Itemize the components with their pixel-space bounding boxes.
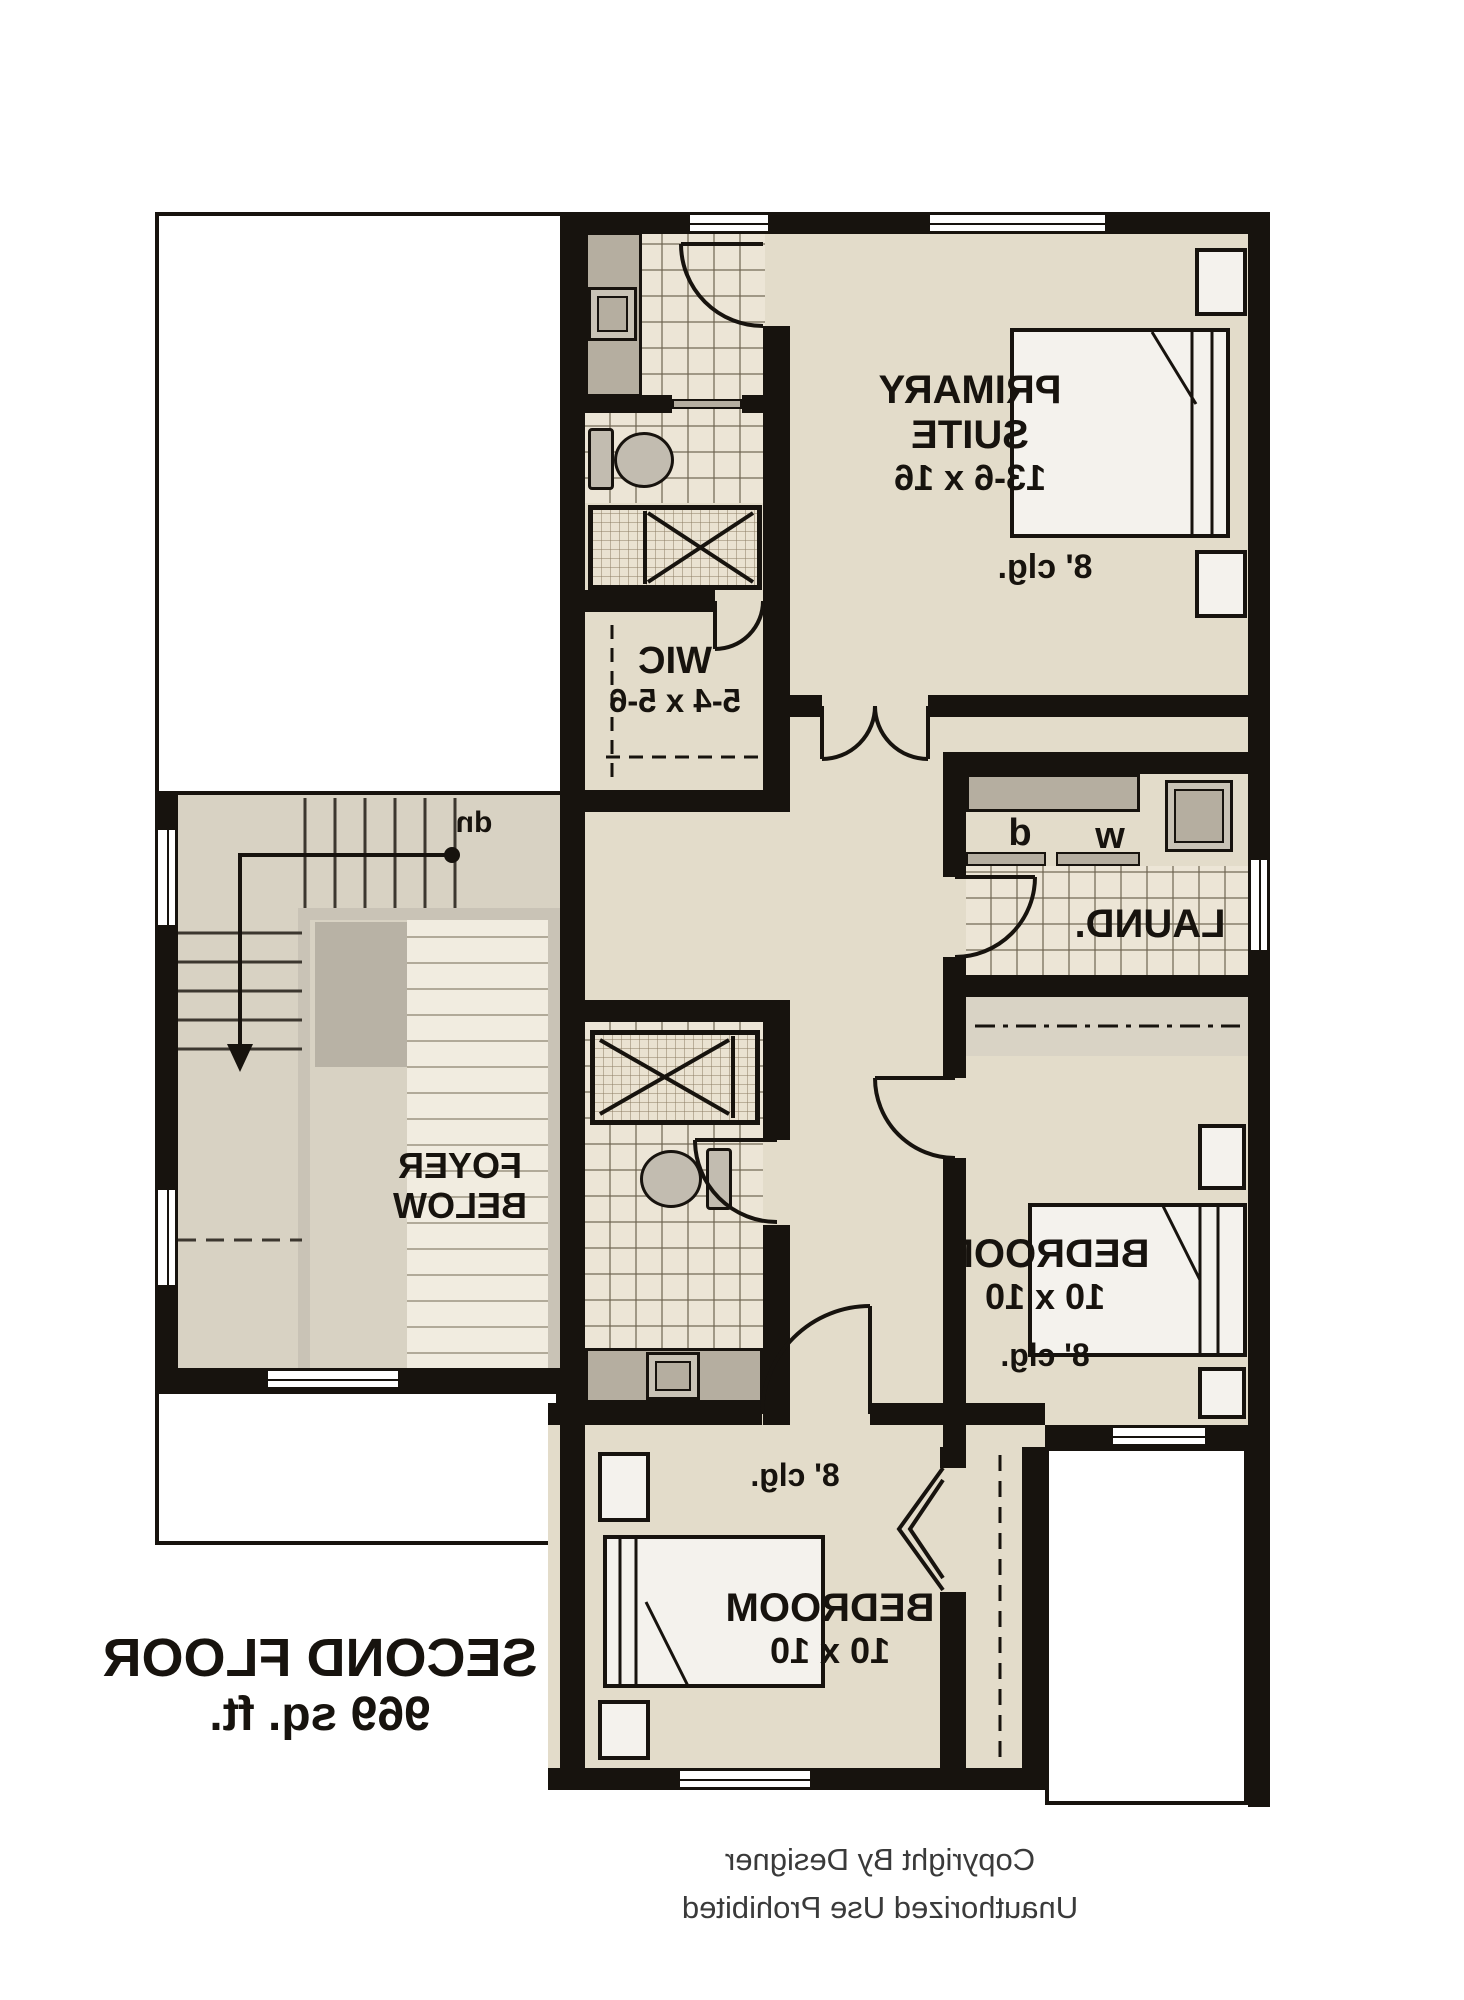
linen-closet <box>966 997 1248 1056</box>
wall <box>560 790 790 812</box>
wall <box>560 1000 785 1022</box>
primary-ceiling-label: 8' clg. <box>960 548 1130 586</box>
wall <box>155 795 178 830</box>
wall <box>1105 212 1270 234</box>
floor-plan-canvas: WIC 5-4 x 5-6 d w LAUND. PRIMARY SUITE 1… <box>0 0 1464 2000</box>
washer-label: w <box>1086 815 1134 858</box>
wall <box>1022 1447 1045 1790</box>
wall <box>763 326 790 812</box>
bedroom-right-ceiling-label: 8' clg. <box>960 1338 1130 1374</box>
copyright-line2: Unauthorized Use Prohibited <box>600 1884 1160 1932</box>
toilet-icon <box>706 1148 732 1210</box>
window <box>268 1368 398 1390</box>
wall <box>943 1158 966 1447</box>
wall <box>1248 950 1270 1447</box>
stair-dn-label: dn <box>444 806 504 840</box>
wall <box>155 925 178 1190</box>
wall <box>928 695 1270 717</box>
window <box>155 1190 178 1285</box>
copyright-line1: Copyright By Designer <box>600 1836 1160 1884</box>
laundry-label: LAUND. <box>1050 902 1250 947</box>
toilet-icon <box>614 432 674 488</box>
laundry-counter <box>966 774 1140 812</box>
room-label: WIC <box>590 640 760 683</box>
wall <box>1045 1425 1113 1447</box>
room-label: BELOW <box>370 1186 550 1226</box>
floor-area: 969 sq. ft. <box>60 1688 580 1742</box>
wall <box>155 1285 178 1368</box>
bedroom-bottom-ceiling-label: 8' clg. <box>710 1458 880 1494</box>
roof-area-bottom-left <box>155 1390 560 1545</box>
half-wall <box>585 395 672 413</box>
wall <box>943 752 1270 774</box>
wall <box>943 957 966 1078</box>
wall <box>940 1592 966 1768</box>
window <box>680 1768 810 1790</box>
room-dims: 13-6 x 16 <box>840 458 1100 498</box>
roof-area-top-left <box>155 212 570 795</box>
wic-label-block: WIC 5-4 x 5-6 <box>590 640 760 720</box>
nightstand <box>1195 248 1247 316</box>
wall <box>810 1768 1045 1790</box>
dryer-label: d <box>998 812 1042 855</box>
nightstand <box>598 1700 650 1760</box>
window <box>1248 860 1270 950</box>
room-label: SUITE <box>840 413 1100 458</box>
wall <box>763 1225 790 1425</box>
shelf <box>672 399 742 409</box>
toilet-icon <box>640 1150 702 1208</box>
room-label: PRIMARY <box>840 368 1100 413</box>
wall <box>560 212 585 1790</box>
half-wall <box>742 395 765 413</box>
nightstand <box>1198 1367 1246 1419</box>
window <box>930 212 1105 234</box>
bath-sink-icon <box>646 1352 700 1400</box>
wall <box>763 1000 790 1140</box>
roof-area-bottom-right <box>1045 1447 1248 1805</box>
copyright-block: Copyright By Designer Unauthorized Use P… <box>600 1836 1160 1932</box>
wall <box>155 1368 268 1390</box>
window <box>690 212 768 234</box>
laundry-sink-icon <box>1165 780 1233 852</box>
nightstand <box>1198 1124 1246 1190</box>
wall <box>1248 1447 1270 1807</box>
shower-icon <box>588 505 762 590</box>
window <box>155 830 178 925</box>
nightstand <box>1195 550 1247 618</box>
wall <box>940 1447 966 1468</box>
room-label: FOYER <box>370 1146 550 1186</box>
window <box>1113 1425 1205 1447</box>
room-dims: 5-4 x 5-6 <box>590 683 760 720</box>
bath-sink-icon <box>588 287 637 341</box>
wall <box>943 975 1270 997</box>
nightstand <box>598 1452 650 1522</box>
wall <box>1248 212 1270 860</box>
shower-icon <box>590 1030 760 1125</box>
wall <box>398 1368 585 1390</box>
floor-title-block: SECOND FLOOR 969 sq. ft. <box>60 1628 580 1742</box>
wall <box>943 752 966 877</box>
wall <box>768 212 930 234</box>
floor-title: SECOND FLOOR <box>60 1628 580 1688</box>
foyer-label-block: FOYER BELOW <box>370 1146 550 1227</box>
primary-suite-label-block: PRIMARY SUITE 13-6 x 16 <box>840 368 1100 498</box>
toilet-icon <box>588 428 614 490</box>
